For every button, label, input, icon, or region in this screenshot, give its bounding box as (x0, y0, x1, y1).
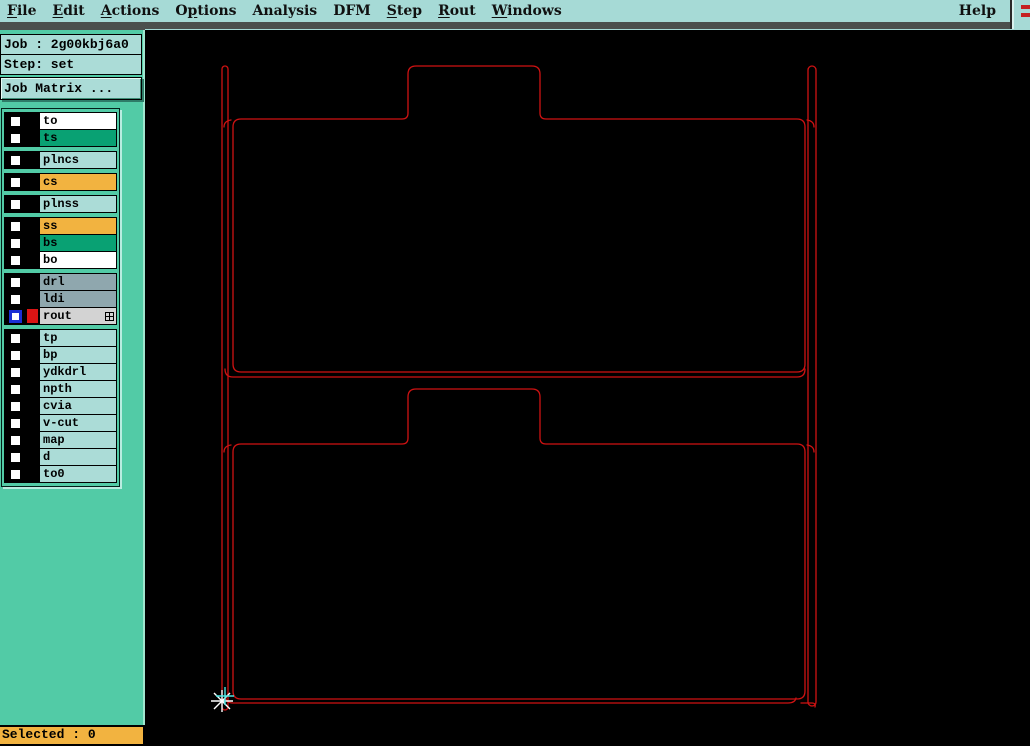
layer-color-swatch-drl[interactable] (26, 274, 39, 290)
layer-list: totsplncscsplnssssbsbodrlldirouttpbpydkd… (1, 108, 120, 487)
layer-checkbox-tile (5, 330, 26, 346)
layer-name-ts[interactable]: ts (39, 130, 116, 146)
layer-row-bp[interactable]: bp (5, 346, 116, 363)
rout-paths (222, 66, 816, 710)
layer-row-rout[interactable]: rout (5, 307, 116, 324)
layer-row-tp[interactable]: tp (5, 330, 116, 346)
layer-group: ssbsbo (4, 217, 117, 269)
graphic-work-canvas[interactable] (145, 30, 1030, 746)
layer-name-bs[interactable]: bs (39, 235, 116, 251)
layer-checkbox-map[interactable] (9, 434, 22, 447)
layer-name-ss[interactable]: ss (39, 218, 116, 234)
layer-checkbox-tile (5, 174, 26, 190)
job-step-box: Job : 2g00kbj6a0 Step: set (0, 34, 142, 75)
layer-checkbox-tile (5, 152, 26, 168)
layer-row-bs[interactable]: bs (5, 234, 116, 251)
layer-checkbox-bp[interactable] (9, 349, 22, 362)
layer-name-d[interactable]: d (39, 449, 116, 465)
layer-name-map[interactable]: map (39, 432, 116, 448)
layer-name-text: plnss (43, 197, 79, 211)
menu-windows[interactable]: Windows (492, 3, 562, 19)
rout-panel-1-outline (233, 66, 805, 372)
layer-checkbox-npth[interactable] (9, 383, 22, 396)
layer-name-plnss[interactable]: plnss (39, 196, 116, 212)
layer-color-swatch-v-cut[interactable] (26, 415, 39, 431)
origin-marker (211, 687, 234, 712)
layer-checkbox-cvia[interactable] (9, 400, 22, 413)
layer-row-to[interactable]: to (5, 113, 116, 129)
layer-checkbox-to[interactable] (9, 115, 22, 128)
layer-color-swatch-ss[interactable] (26, 218, 39, 234)
layer-name-bo[interactable]: bo (39, 252, 116, 268)
layer-name-text: cvia (43, 399, 72, 413)
layer-checkbox-tile (5, 415, 26, 431)
layer-name-text: v-cut (43, 416, 79, 430)
layer-name-to[interactable]: to (39, 113, 116, 129)
layer-name-drl[interactable]: drl (39, 274, 116, 290)
layer-checkbox-tile (5, 308, 26, 324)
layer-checkbox-tile (5, 218, 26, 234)
layer-checkbox-rout[interactable] (9, 310, 22, 323)
menu-file[interactable]: File (7, 3, 37, 19)
layer-row-bo[interactable]: bo (5, 251, 116, 268)
layer-checkbox-tile (5, 432, 26, 448)
rout-layer-drawing (145, 30, 1030, 746)
layer-checkbox-to0[interactable] (9, 468, 22, 481)
layer-checkbox-tp[interactable] (9, 332, 22, 345)
layer-color-swatch-d[interactable] (26, 449, 39, 465)
layer-checkbox-tile (5, 113, 26, 129)
layer-name-text: to0 (43, 467, 65, 481)
layer-checkbox-ts[interactable] (9, 132, 22, 145)
layer-row-npth[interactable]: npth (5, 380, 116, 397)
layer-color-swatch-plnss[interactable] (26, 196, 39, 212)
layer-name-text: d (43, 450, 50, 464)
layer-name-text: map (43, 433, 65, 447)
layer-checkbox-tile (5, 274, 26, 290)
selected-count-status: Selected : 0 (0, 725, 145, 746)
layer-name-cs[interactable]: cs (39, 174, 116, 190)
peek-red-dash (1021, 5, 1030, 9)
layer-color-swatch-cvia[interactable] (26, 398, 39, 414)
layer-row-plncs[interactable]: plncs (5, 152, 116, 168)
layer-name-ydkdrl[interactable]: ydkdrl (39, 364, 116, 380)
rout-left-rail (222, 66, 228, 710)
layer-name-text: npth (43, 382, 72, 396)
rout-right-rail (808, 66, 816, 706)
layer-checkbox-tile (5, 398, 26, 414)
layer-color-swatch-bs[interactable] (26, 235, 39, 251)
layer-name-text: ss (43, 219, 57, 233)
layer-row-ydkdrl[interactable]: ydkdrl (5, 363, 116, 380)
layer-name-v-cut[interactable]: v-cut (39, 415, 116, 431)
layer-row-drl[interactable]: drl (5, 274, 116, 290)
job-label: Job : 2g00kbj6a0 (1, 35, 141, 54)
layer-name-text: to (43, 114, 57, 128)
rout-panel-2-outline (233, 389, 805, 699)
layer-color-swatch-ldi[interactable] (26, 291, 39, 307)
layer-group: drlldirout (4, 273, 117, 325)
menu-dfm[interactable]: DFM (333, 3, 371, 19)
layer-color-swatch-to[interactable] (26, 113, 39, 129)
menu-options[interactable]: Options (175, 3, 236, 19)
layer-checkbox-plnss[interactable] (9, 198, 22, 211)
layer-color-swatch-ydkdrl[interactable] (26, 364, 39, 380)
menu-analysis[interactable]: Analysis (253, 3, 318, 19)
peek-red-dash (1021, 13, 1030, 17)
sidebar: Job : 2g00kbj6a0 Step: set Job Matrix ..… (0, 30, 145, 726)
menu-rout[interactable]: Rout (438, 3, 476, 19)
menu-step[interactable]: Step (387, 3, 422, 19)
layer-row-plnss[interactable]: plnss (5, 196, 116, 212)
layer-name-text: bs (43, 236, 57, 250)
layer-row-d[interactable]: d (5, 448, 116, 465)
layer-checkbox-bs[interactable] (9, 237, 22, 250)
layer-group: tots (4, 112, 117, 147)
layer-checkbox-v-cut[interactable] (9, 417, 22, 430)
layer-color-swatch-map[interactable] (26, 432, 39, 448)
layer-name-text: drl (43, 275, 65, 289)
layer-checkbox-tile (5, 466, 26, 482)
layer-group: plnss (4, 195, 117, 213)
layer-checkbox-bo[interactable] (9, 254, 22, 267)
menu-edit[interactable]: Edit (53, 3, 85, 19)
layer-name-tp[interactable]: tp (39, 330, 116, 346)
layer-checkbox-ldi[interactable] (9, 293, 22, 306)
layer-name-npth[interactable]: npth (39, 381, 116, 397)
layer-color-swatch-cs[interactable] (26, 174, 39, 190)
menu-actions[interactable]: Actions (101, 3, 160, 19)
layer-name-ldi[interactable]: ldi (39, 291, 116, 307)
rout-mid-line (225, 369, 805, 377)
layer-name-text: rout (43, 309, 72, 323)
menubar: FileEditActionsOptionsAnalysisDFMStepRou… (0, 0, 1010, 22)
layer-row-ss[interactable]: ss (5, 218, 116, 234)
menu-help[interactable]: Help (959, 3, 996, 19)
layer-name-text: ts (43, 131, 57, 145)
grid-icon (105, 312, 114, 321)
layer-checkbox-tile (5, 449, 26, 465)
layer-color-swatch-tp[interactable] (26, 330, 39, 346)
layer-row-cvia[interactable]: cvia (5, 397, 116, 414)
layer-name-text: ydkdrl (43, 365, 86, 379)
layer-name-rout[interactable]: rout (39, 308, 116, 324)
layer-checkbox-ss[interactable] (9, 220, 22, 233)
layer-row-ldi[interactable]: ldi (5, 290, 116, 307)
layer-group: tpbpydkdrlnpthcviav-cutmapdto0 (4, 329, 117, 483)
layer-color-swatch-bp[interactable] (26, 347, 39, 363)
layer-color-swatch-plncs[interactable] (26, 152, 39, 168)
layer-row-map[interactable]: map (5, 431, 116, 448)
layer-checkbox-tile (5, 252, 26, 268)
layer-name-bp[interactable]: bp (39, 347, 116, 363)
layer-color-swatch-rout[interactable] (26, 308, 39, 324)
layer-checkbox-tile (5, 364, 26, 380)
layer-row-to0[interactable]: to0 (5, 465, 116, 482)
layer-row-v-cut[interactable]: v-cut (5, 414, 116, 431)
layer-color-swatch-ts[interactable] (26, 130, 39, 146)
layer-row-ts[interactable]: ts (5, 129, 116, 146)
layer-checkbox-plncs[interactable] (9, 154, 22, 167)
layer-group: cs (4, 173, 117, 191)
layer-name-plncs[interactable]: plncs (39, 152, 116, 168)
layer-name-text: bo (43, 253, 57, 267)
layer-name-to0[interactable]: to0 (39, 466, 116, 482)
layer-checkbox-tile (5, 130, 26, 146)
layer-group: plncs (4, 151, 117, 169)
layer-checkbox-tile (5, 291, 26, 307)
step-label: Step: set (1, 54, 141, 74)
layer-checkbox-tile (5, 347, 26, 363)
layer-color-swatch-npth[interactable] (26, 381, 39, 397)
layer-name-text: bp (43, 348, 57, 362)
layer-checkbox-tile (5, 381, 26, 397)
layer-color-swatch-bo[interactable] (26, 252, 39, 268)
layer-checkbox-cs[interactable] (9, 176, 22, 189)
layer-name-cvia[interactable]: cvia (39, 398, 116, 414)
layer-checkbox-tile (5, 235, 26, 251)
layer-row-cs[interactable]: cs (5, 174, 116, 190)
layer-checkbox-d[interactable] (9, 451, 22, 464)
layer-name-text: plncs (43, 153, 79, 167)
layer-checkbox-ydkdrl[interactable] (9, 366, 22, 379)
layer-name-text: ldi (43, 292, 65, 306)
layer-name-text: tp (43, 331, 57, 345)
layer-checkbox-drl[interactable] (9, 276, 22, 289)
layer-checkbox-tile (5, 196, 26, 212)
layer-name-text: cs (43, 175, 57, 189)
layer-color-swatch-to0[interactable] (26, 466, 39, 482)
job-matrix-button[interactable]: Job Matrix ... (0, 77, 142, 100)
